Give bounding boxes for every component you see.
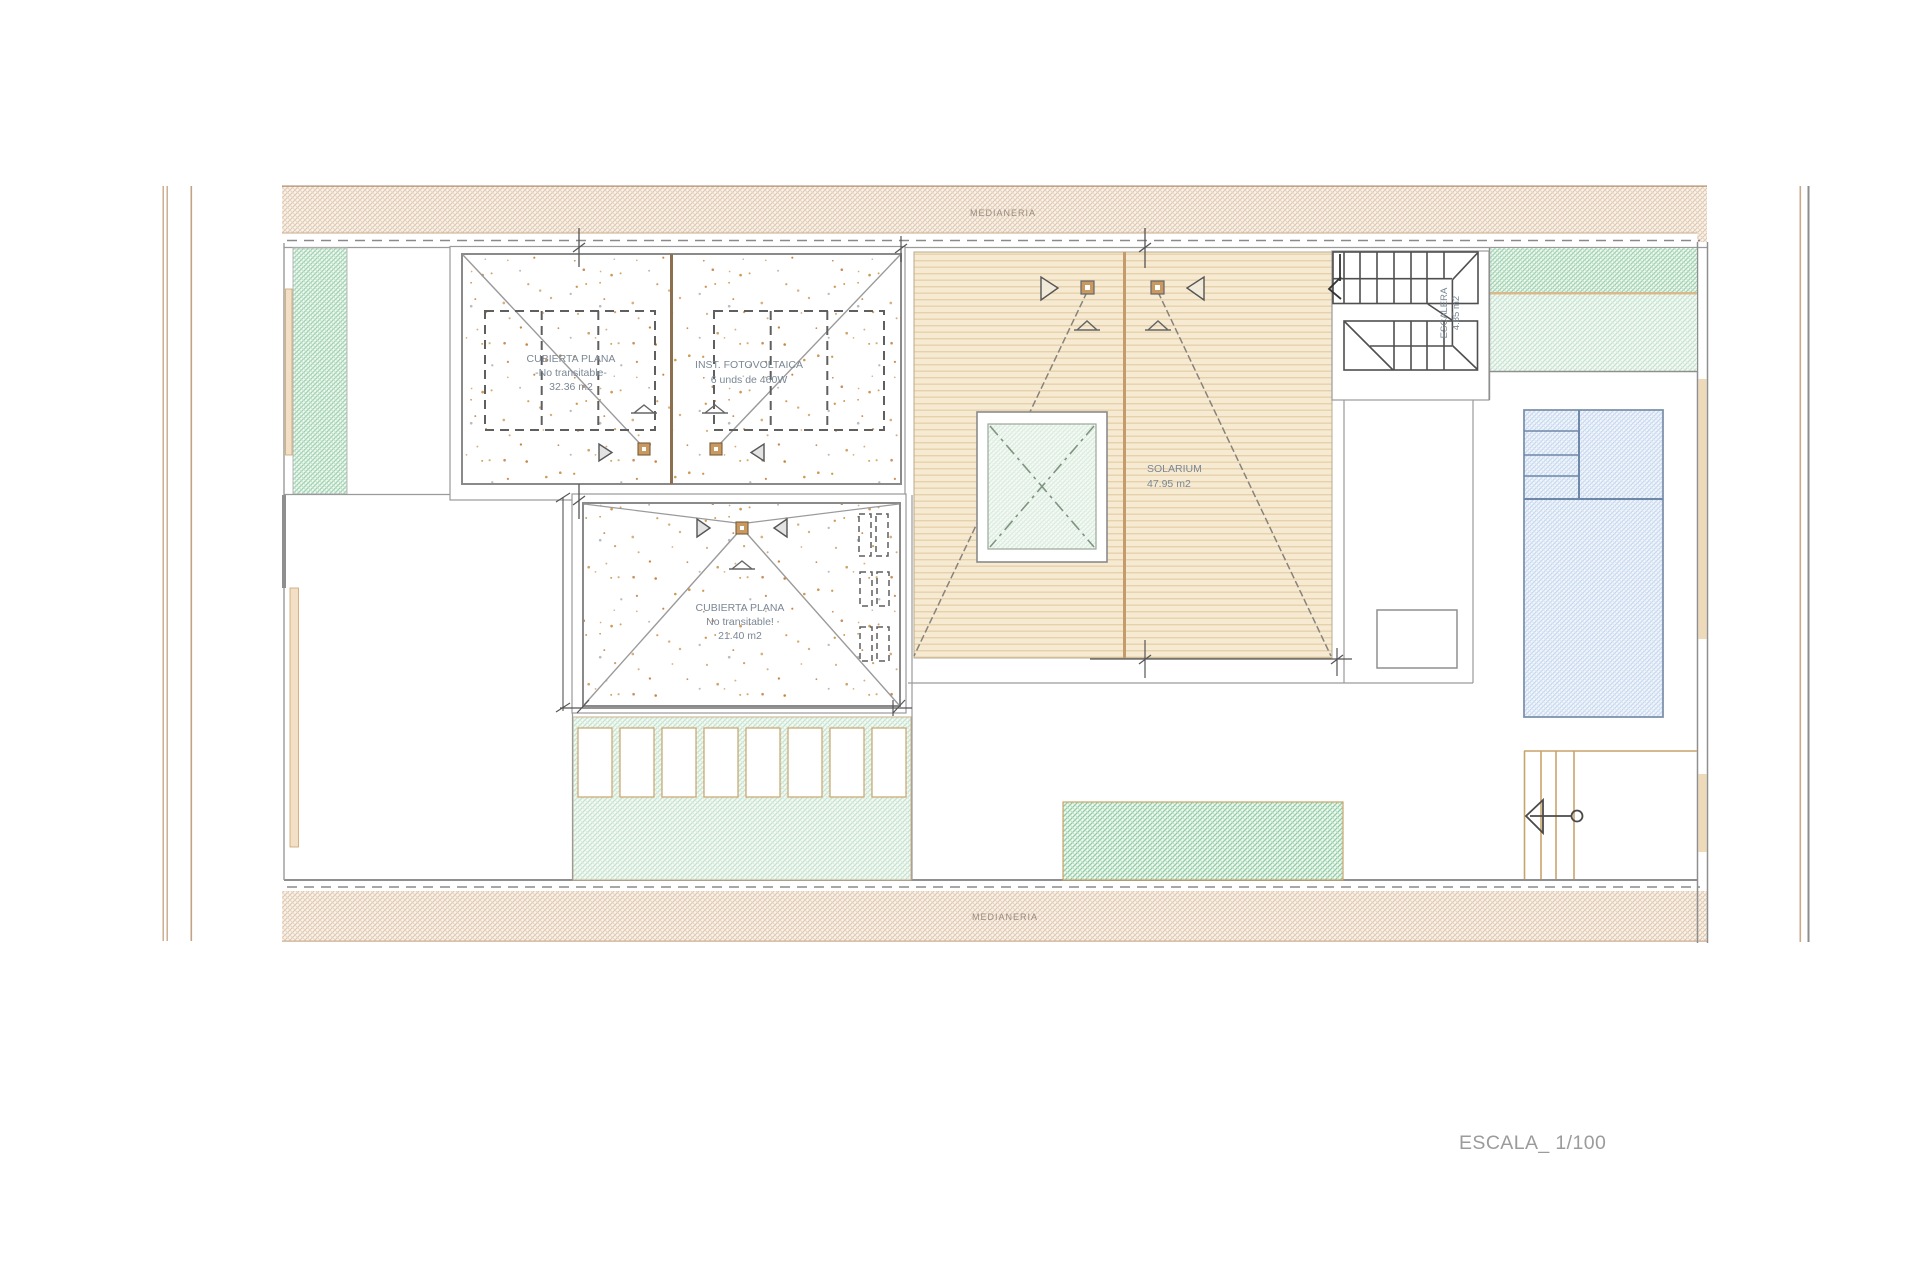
svg-text:SOLARIUM: SOLARIUM — [1147, 463, 1202, 475]
svg-text:No transitable!: No transitable! — [706, 616, 774, 628]
svg-text:4.85 m2: 4.85 m2 — [1451, 296, 1462, 330]
svg-text:ESCALA_ 1/100: ESCALA_ 1/100 — [1459, 1132, 1606, 1154]
svg-text:6 unds de 460W: 6 unds de 460W — [711, 374, 788, 386]
svg-text:ESCALERA: ESCALERA — [1439, 287, 1450, 338]
svg-text:MEDIANERIA: MEDIANERIA — [970, 208, 1036, 218]
svg-text:CUBIERTA PLANA: CUBIERTA PLANA — [527, 353, 616, 365]
svg-text:CUBIERTA PLANA: CUBIERTA PLANA — [696, 602, 785, 614]
svg-text:INST. FOTOVOLTAICA: INST. FOTOVOLTAICA — [695, 359, 803, 371]
svg-text:47.95 m2: 47.95 m2 — [1147, 478, 1191, 490]
svg-text:MEDIANERIA: MEDIANERIA — [972, 912, 1038, 922]
svg-text:21.40 m2: 21.40 m2 — [718, 630, 762, 642]
svg-text:32.36 m2: 32.36 m2 — [549, 381, 593, 393]
svg-text:-No transitable-: -No transitable- — [535, 367, 607, 379]
